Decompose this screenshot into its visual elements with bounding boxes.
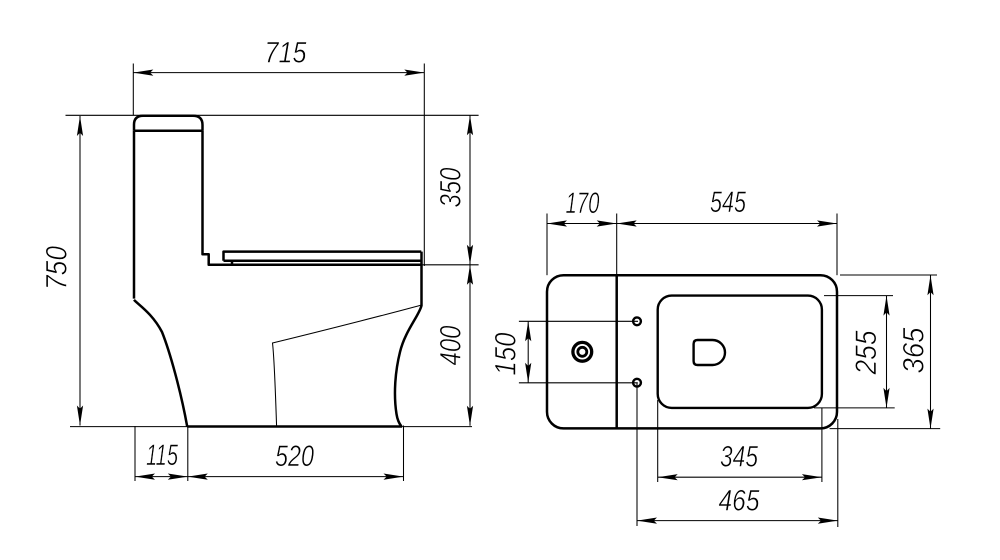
svg-text:715: 715 <box>265 37 307 70</box>
svg-text:400: 400 <box>435 325 468 365</box>
svg-text:170: 170 <box>566 187 600 220</box>
svg-text:350: 350 <box>435 167 468 207</box>
svg-text:345: 345 <box>720 441 758 474</box>
svg-text:115: 115 <box>146 439 178 472</box>
svg-text:255: 255 <box>850 330 883 375</box>
svg-text:520: 520 <box>275 440 314 473</box>
svg-text:150: 150 <box>490 332 523 375</box>
svg-text:545: 545 <box>710 186 746 219</box>
svg-text:750: 750 <box>41 246 74 290</box>
svg-text:465: 465 <box>719 485 760 518</box>
svg-text:365: 365 <box>898 327 931 373</box>
